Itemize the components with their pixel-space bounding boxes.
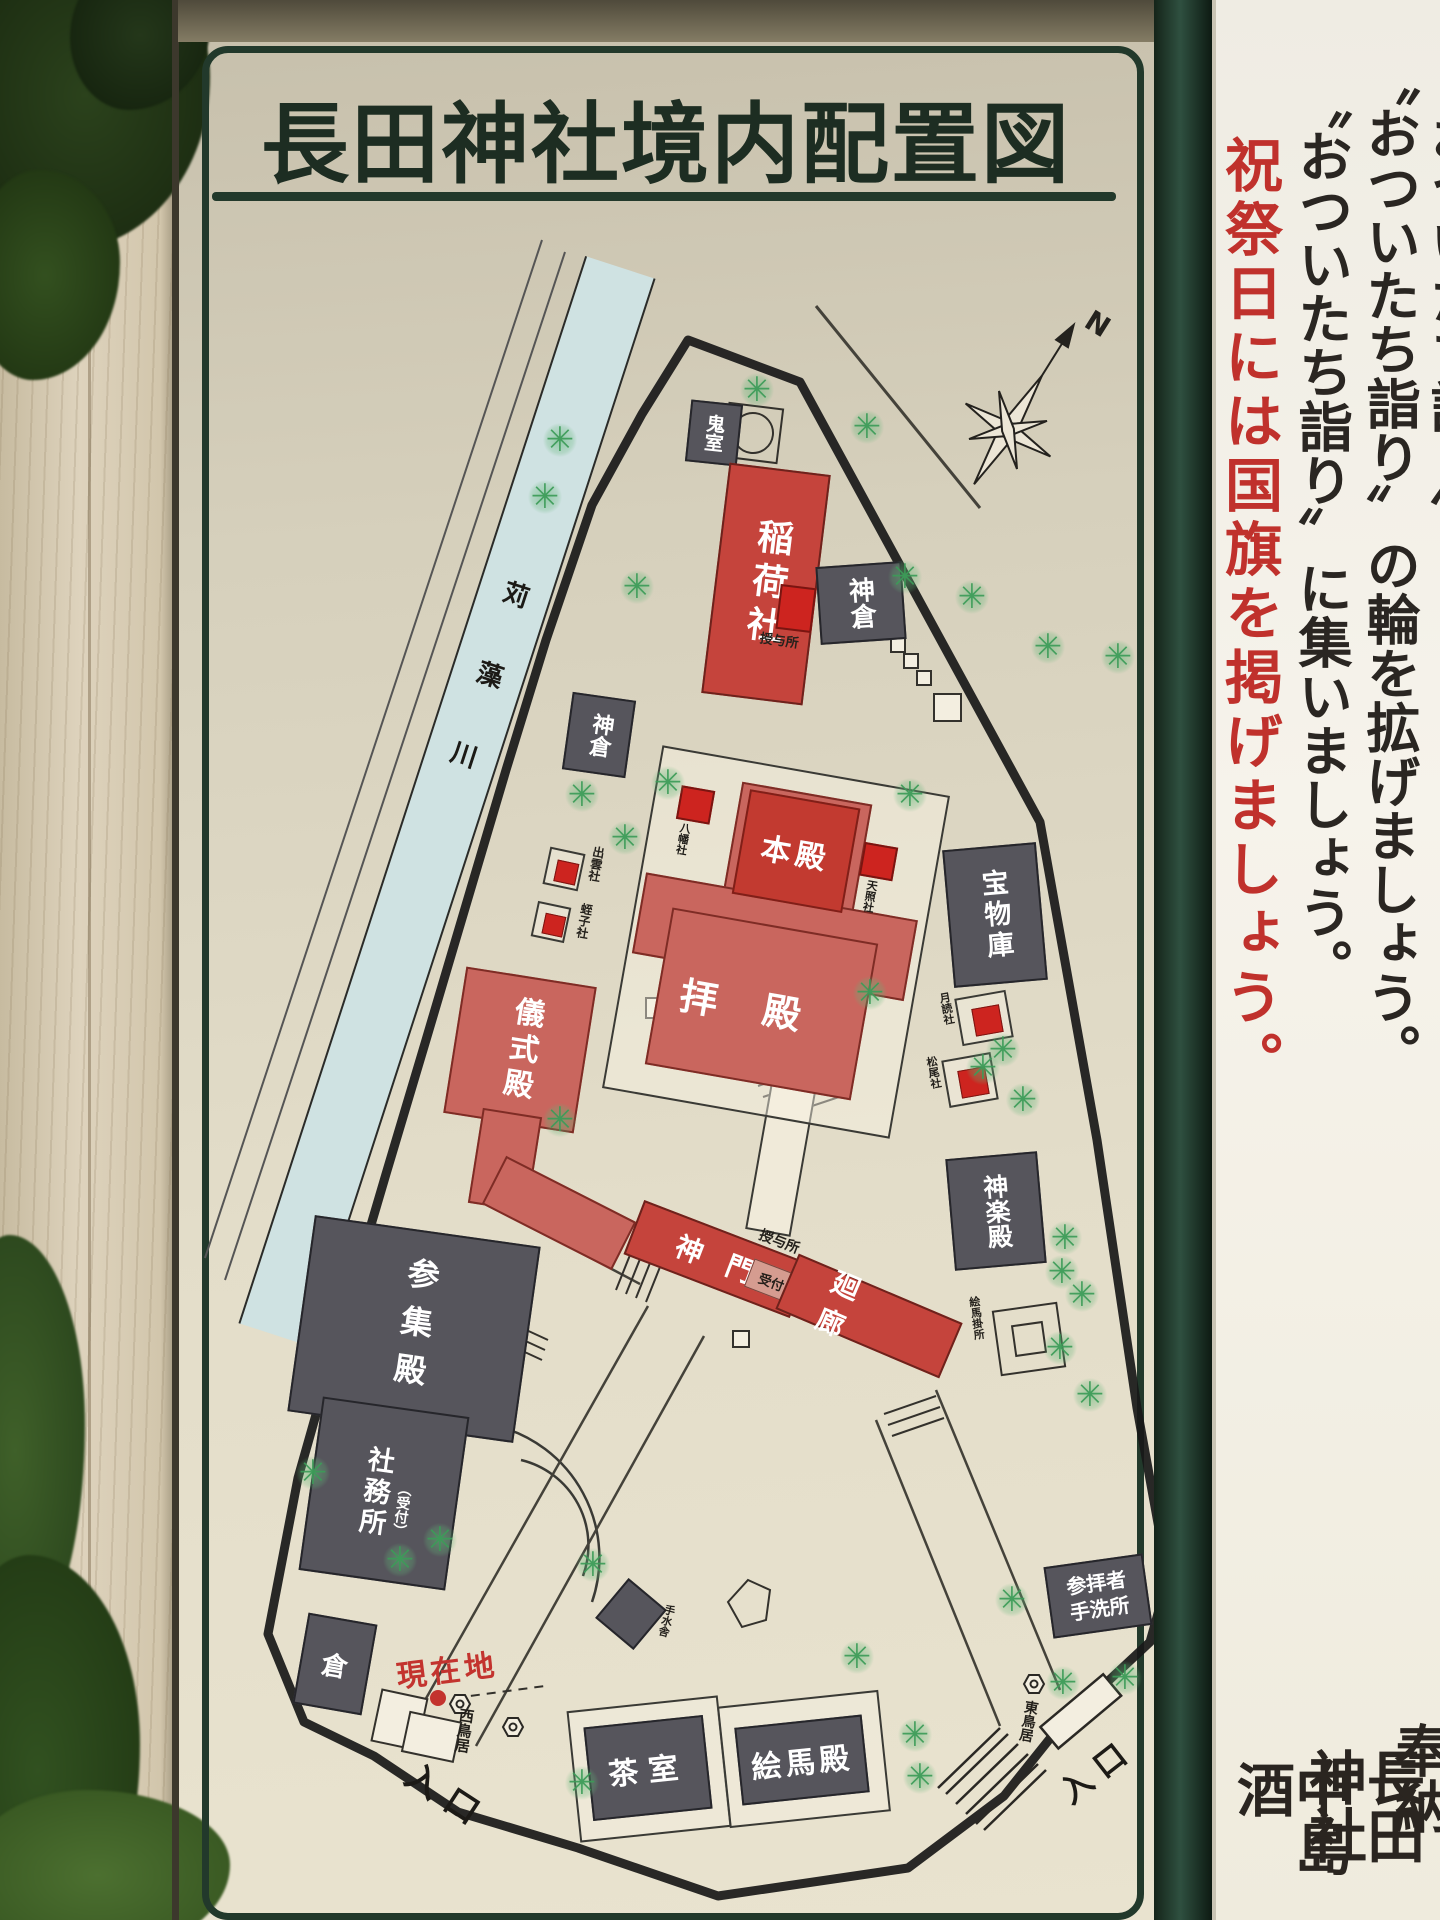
building-homotsuko: 宝物庫 [942, 842, 1048, 988]
dedication-nakajima: 中島酒 [1232, 1760, 1348, 1920]
tree-icon [888, 773, 932, 817]
building-label: 儀式殿 [490, 993, 550, 1107]
pentagon-structure [728, 1580, 770, 1627]
compass-icon: N [926, 269, 1137, 514]
current-location-dot [430, 1690, 446, 1706]
building-label: 参拝者手洗所 [1063, 1566, 1134, 1626]
building-juyosho-north [775, 584, 816, 633]
current-location-dashes [455, 1686, 545, 1698]
tree-icon [1068, 1373, 1112, 1417]
building-kaguraden: 神楽殿 [945, 1151, 1046, 1271]
compass-north-label: N [1079, 304, 1116, 344]
tree-icon [560, 773, 604, 817]
building-label: 参集殿 [381, 1254, 447, 1403]
tree-icon [538, 418, 582, 462]
tree-icon [538, 1098, 582, 1142]
tree-icon [1026, 625, 1070, 669]
tree-icon [418, 1518, 462, 1562]
building-izumo-sha [553, 860, 579, 886]
board-edge-shadow [172, 0, 179, 1920]
tree-icon [1103, 1656, 1147, 1700]
building-label: 本殿 [758, 823, 835, 878]
notice-panel: 〝おついたち詣り〟 〝おついたち詣り〟の輪を拡げましょう。 〝おついたち詣り〟に… [1212, 0, 1440, 1920]
notice-column-kokki-red: 祝祭日には国旗を掲げましょう。 [1220, 135, 1278, 1095]
tree-icon [378, 1538, 422, 1582]
east-entrance-stairs [938, 1728, 1046, 1830]
building-kishitsu: 鬼室 [685, 399, 743, 466]
tree-icon [1038, 1326, 1082, 1370]
tree-icon [735, 368, 779, 412]
tree-icon [1041, 1661, 1085, 1705]
building-chashitsu: 茶室 [583, 1715, 712, 1821]
building-honden: 本殿 [732, 789, 861, 913]
tree-icon [560, 1761, 604, 1805]
tree-icon [893, 1713, 937, 1757]
tree-icon [990, 1578, 1034, 1622]
tree-icon [961, 1046, 1005, 1090]
top-wooden-beam [178, 0, 1154, 42]
tree-icon [848, 971, 892, 1015]
sign-frame-edge [1154, 0, 1212, 1920]
building-emaden: 絵馬殿 [734, 1715, 869, 1806]
building-label: 鬼室 [699, 413, 730, 454]
tree-icon [523, 475, 567, 519]
tree-icon [950, 575, 994, 619]
building-label: 神倉 [841, 576, 882, 630]
tree-icon [1001, 1078, 1045, 1122]
building-label: 宝物庫 [972, 867, 1019, 963]
tree-icon [571, 1543, 615, 1587]
tree-icon [883, 555, 927, 599]
tree-icon [291, 1451, 335, 1495]
notice-column-hirogemashou: 〝おついたち詣り〟の輪を拡げましょう。 [1362, 52, 1416, 1078]
tree-icon [646, 761, 690, 805]
building-tensho-sha [859, 842, 898, 881]
northeast-road-line [816, 306, 980, 508]
notice-column-cut: 〝おついたち詣り〟 [1426, 55, 1440, 541]
building-hiruko-sha [541, 913, 566, 938]
tree-icon [1060, 1273, 1104, 1317]
building-label: 神倉 [580, 711, 618, 759]
tree-icon [603, 816, 647, 860]
tree-icon [898, 1755, 942, 1799]
tree-icon [835, 1635, 879, 1679]
building-label: 絵馬殿 [749, 1733, 855, 1787]
tree-icon [845, 405, 889, 449]
map-title: 長田神社境内配置図 [178, 74, 1154, 201]
building-label: 神楽殿 [975, 1172, 1017, 1250]
building-sanpaisha-tearaisho: 参拝者手洗所 [1043, 1553, 1152, 1638]
notice-column-tsudoimashou: 〝おついたち詣り〟に集いましょう。 [1294, 75, 1348, 993]
building-label: 倉 [319, 1644, 351, 1685]
building-label: 茶室 [606, 1742, 690, 1794]
title-divider-rule [212, 192, 1116, 201]
izumo-enclosure [542, 847, 585, 892]
building-kamikura-west: 神倉 [562, 692, 636, 778]
tree-icon [615, 565, 659, 609]
tree-icon [1096, 635, 1140, 679]
